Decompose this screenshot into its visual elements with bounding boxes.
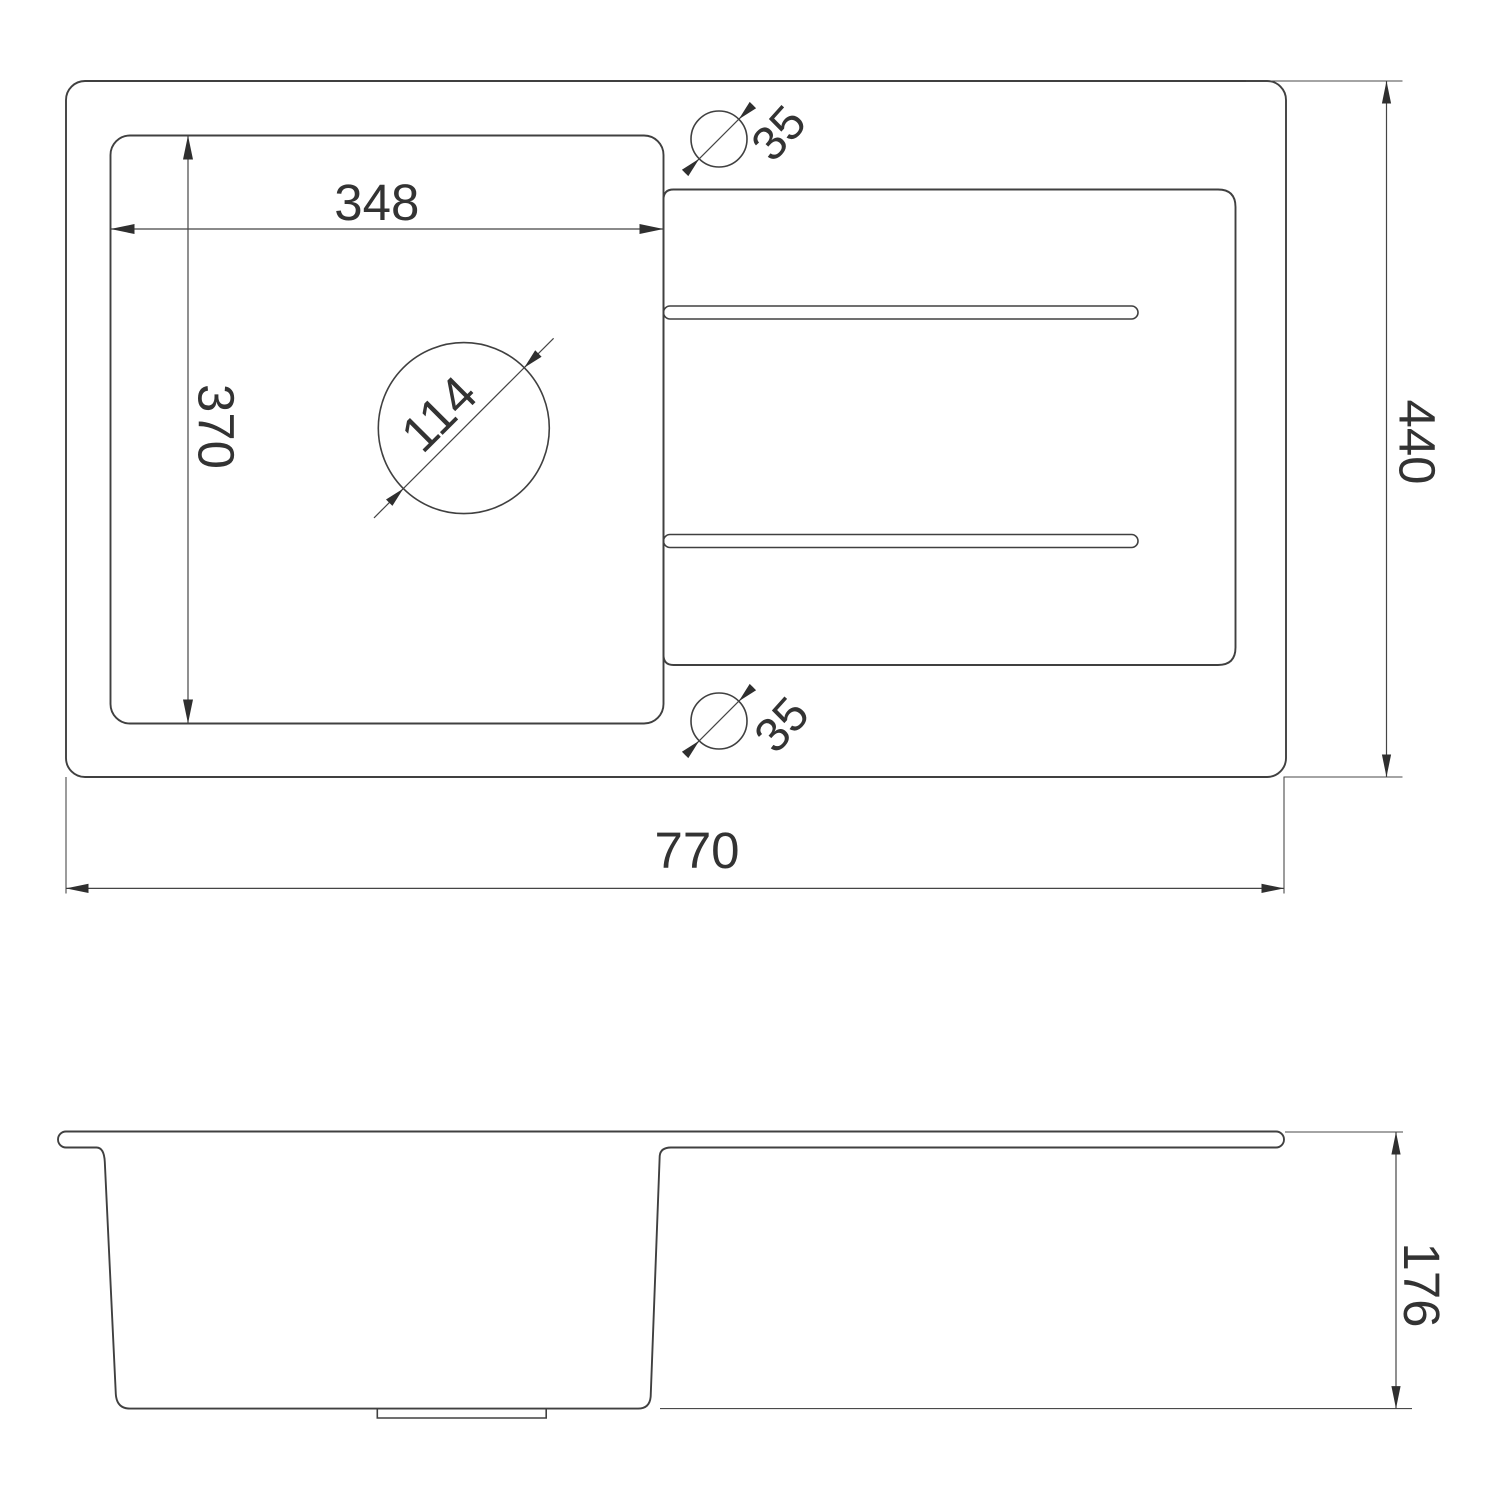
svg-text:348: 348	[334, 174, 419, 231]
svg-text:440: 440	[1389, 399, 1446, 484]
svg-text:370: 370	[187, 384, 244, 469]
svg-text:176: 176	[1393, 1242, 1450, 1327]
svg-text:770: 770	[654, 822, 739, 879]
